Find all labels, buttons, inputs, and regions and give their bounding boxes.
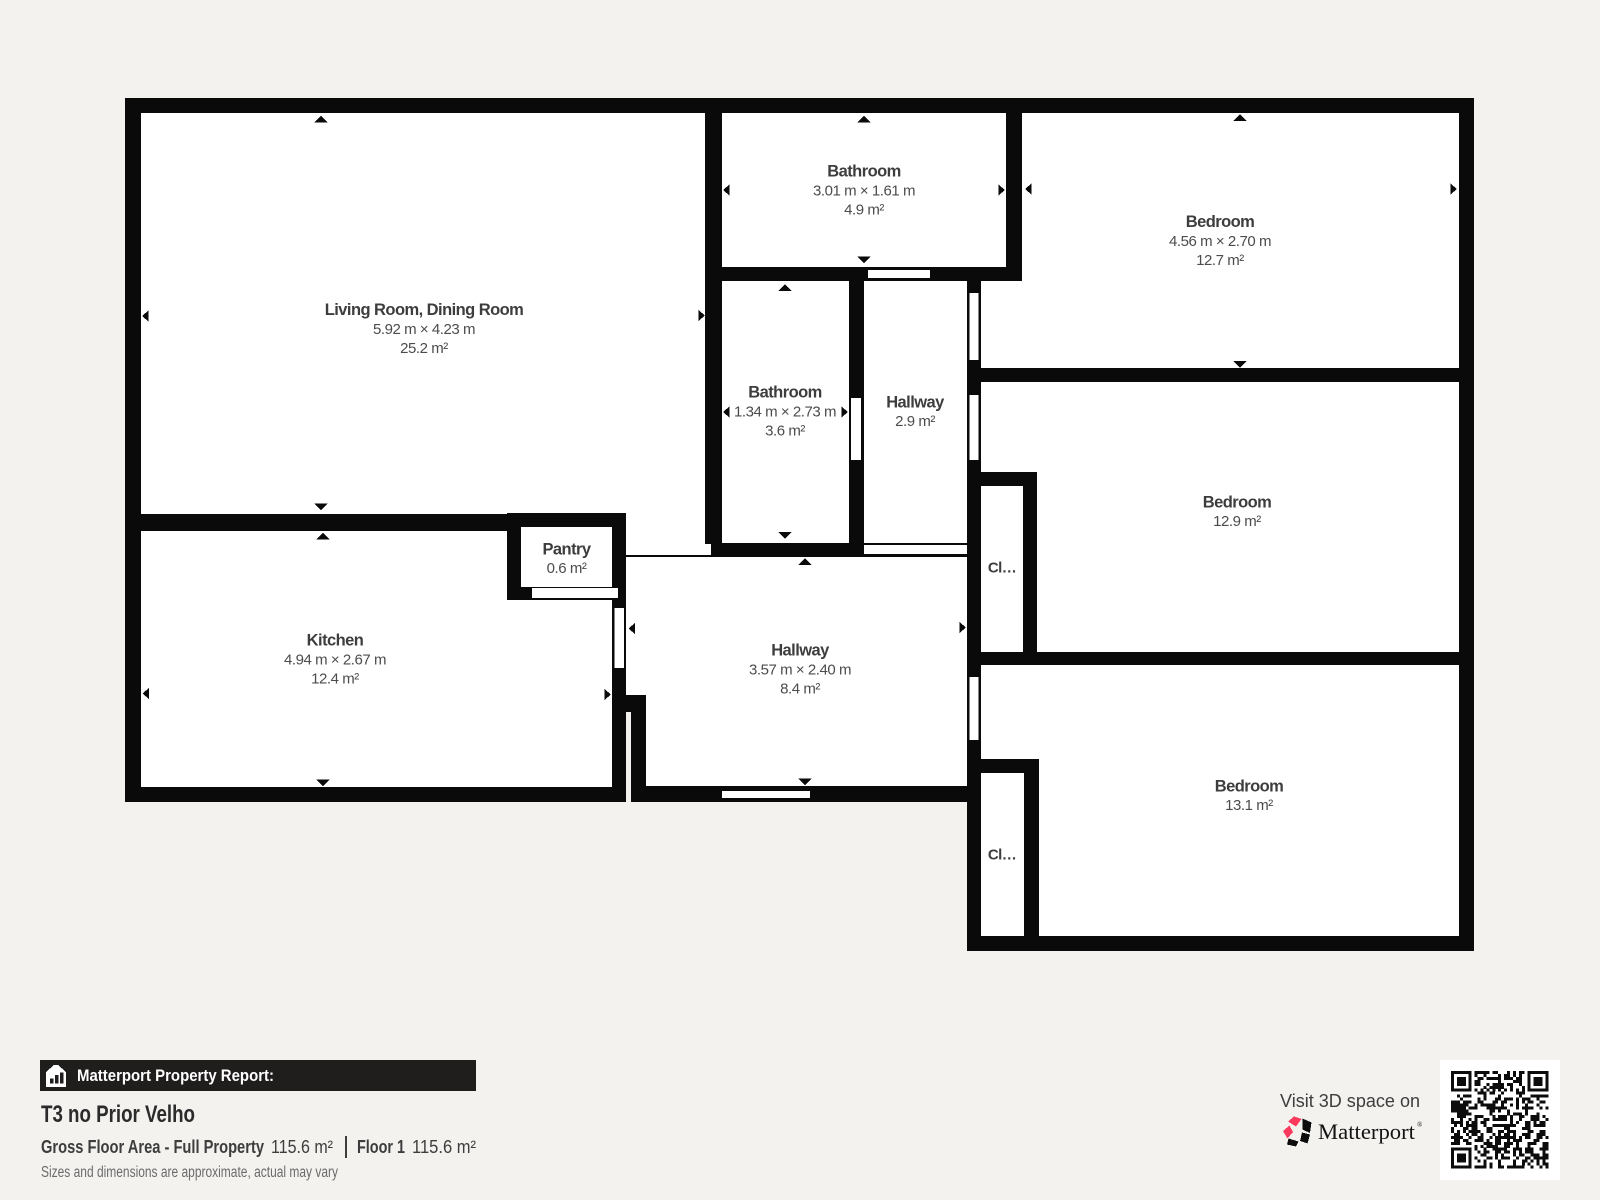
svg-text:Kitchen: Kitchen — [307, 632, 364, 650]
svg-text:115.6 m²: 115.6 m² — [412, 1137, 476, 1157]
svg-text:3.01 m × 1.61 m: 3.01 m × 1.61 m — [813, 183, 915, 200]
svg-text:Matterport Property Report:: Matterport Property Report: — [77, 1067, 274, 1085]
svg-text:12.9 m²: 12.9 m² — [1213, 513, 1261, 530]
svg-text:0.6 m²: 0.6 m² — [547, 560, 587, 577]
svg-text:Hallway: Hallway — [886, 394, 945, 412]
svg-text:Cl…: Cl… — [988, 560, 1016, 577]
svg-text:Matterport: Matterport — [1318, 1119, 1415, 1144]
svg-text:Visit 3D space on: Visit 3D space on — [1280, 1091, 1420, 1111]
svg-text:4.56 m × 2.70 m: 4.56 m × 2.70 m — [1169, 233, 1271, 250]
svg-text:Hallway: Hallway — [771, 642, 830, 660]
svg-text:Gross Floor Area - Full Proper: Gross Floor Area - Full Property — [41, 1137, 264, 1157]
svg-text:Sizes and dimensions are appro: Sizes and dimensions are approximate, ac… — [41, 1164, 338, 1181]
svg-text:Bathroom: Bathroom — [827, 163, 901, 181]
svg-text:Cl…: Cl… — [988, 847, 1016, 864]
svg-text:Bedroom: Bedroom — [1203, 494, 1272, 512]
svg-text:Floor 1: Floor 1 — [357, 1137, 405, 1157]
svg-text:5.92 m × 4.23 m: 5.92 m × 4.23 m — [373, 321, 475, 338]
svg-text:12.7 m²: 12.7 m² — [1196, 252, 1244, 269]
svg-text:4.94 m × 2.67 m: 4.94 m × 2.67 m — [284, 652, 386, 669]
svg-text:25.2 m²: 25.2 m² — [400, 340, 448, 357]
svg-text:Bathroom: Bathroom — [748, 384, 822, 402]
svg-text:3.57 m × 2.40 m: 3.57 m × 2.40 m — [749, 662, 851, 679]
svg-text:Bedroom: Bedroom — [1186, 213, 1255, 231]
svg-text:1.34 m × 2.73 m: 1.34 m × 2.73 m — [734, 404, 836, 421]
svg-text:13.1 m²: 13.1 m² — [1225, 797, 1273, 814]
svg-text:4.9 m²: 4.9 m² — [844, 202, 884, 219]
svg-text:3.6 m²: 3.6 m² — [765, 423, 805, 440]
svg-text:2.9 m²: 2.9 m² — [895, 413, 935, 430]
svg-text:®: ® — [1417, 1121, 1423, 1129]
svg-text:Bedroom: Bedroom — [1215, 778, 1284, 796]
svg-text:Pantry: Pantry — [542, 541, 591, 559]
svg-text:T3 no Prior Velho: T3 no Prior Velho — [41, 1101, 195, 1128]
svg-text:12.4 m²: 12.4 m² — [311, 671, 359, 688]
svg-text:Living Room, Dining Room: Living Room, Dining Room — [325, 301, 524, 319]
svg-text:115.6 m²: 115.6 m² — [271, 1137, 333, 1157]
svg-text:8.4 m²: 8.4 m² — [780, 681, 820, 698]
